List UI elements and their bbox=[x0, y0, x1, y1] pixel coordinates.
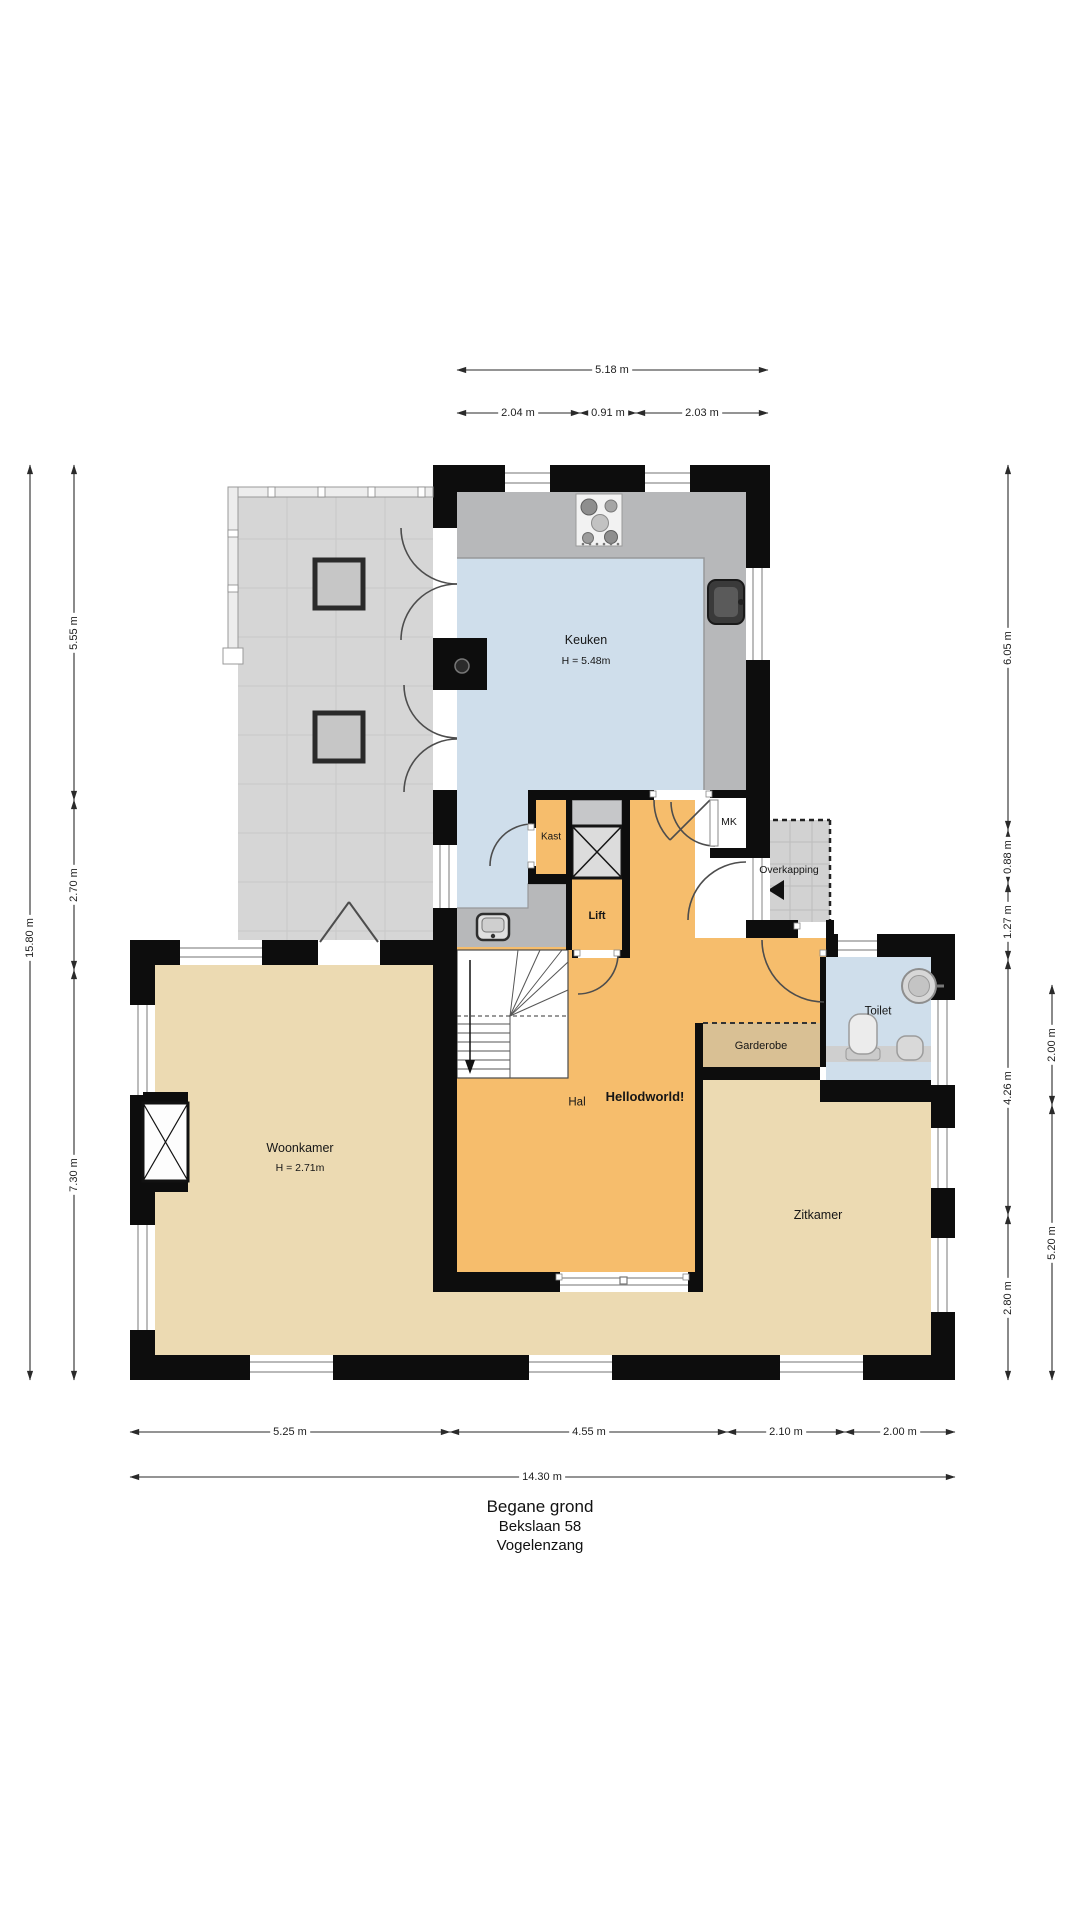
dim-bottom-total: 14.30 m bbox=[519, 1471, 565, 1483]
room-label-lift: Lift bbox=[588, 910, 605, 922]
page-title: Begane grond bbox=[487, 1497, 594, 1517]
dim-right-seg2: 0.88 m bbox=[1002, 837, 1014, 877]
room-label-kast: Kast bbox=[541, 832, 561, 843]
dim-top-seg1: 2.04 m bbox=[498, 407, 538, 419]
window bbox=[529, 1355, 612, 1380]
dim-bottom-seg2: 4.55 m bbox=[569, 1426, 609, 1438]
dim-left-seg1: 5.55 m bbox=[68, 613, 80, 653]
back-door-opening bbox=[798, 922, 826, 938]
lift-door-opening bbox=[578, 950, 618, 958]
window bbox=[780, 1355, 863, 1380]
terrace-column bbox=[315, 713, 363, 761]
chimney bbox=[143, 1092, 188, 1192]
dim-right-outer-seg1: 2.00 m bbox=[1046, 1025, 1058, 1065]
dim-right-seg5: 2.80 m bbox=[1002, 1278, 1014, 1318]
kast-door-opening bbox=[528, 828, 536, 866]
floorplan-page: Keuken H = 5.48m Kast Lift MK Overkappin… bbox=[0, 0, 1080, 1920]
dim-right-seg4: 4.26 m bbox=[1002, 1068, 1014, 1108]
room-height-woonkamer: H = 2.71m bbox=[276, 1163, 325, 1175]
kitchen-sink-icon bbox=[708, 580, 744, 624]
room-height-keuken: H = 5.48m bbox=[562, 656, 611, 668]
window bbox=[130, 1225, 155, 1330]
hal-note-text: Hellodworld! bbox=[606, 1090, 685, 1104]
dim-top-total: 5.18 m bbox=[592, 364, 632, 376]
dim-left-total: 15.80 m bbox=[24, 915, 36, 961]
mk-door-leaf bbox=[710, 800, 718, 846]
dim-top-seg2: 0.91 m bbox=[588, 407, 628, 419]
window bbox=[645, 465, 690, 492]
dim-top-seg3: 2.03 m bbox=[682, 407, 722, 419]
dim-bottom-seg3: 2.10 m bbox=[766, 1426, 806, 1438]
window bbox=[505, 465, 550, 492]
room-label-toilet: Toilet bbox=[865, 1006, 892, 1019]
dim-right-seg1: 6.05 m bbox=[1002, 628, 1014, 668]
dim-right-seg3: 1.27 m bbox=[1002, 902, 1014, 942]
dim-bottom-seg4: 2.00 m bbox=[880, 1426, 920, 1438]
dim-left-seg2: 2.70 m bbox=[68, 865, 80, 905]
room-label-garderobe: Garderobe bbox=[735, 1040, 788, 1052]
room-label-keuken: Keuken bbox=[565, 634, 607, 648]
staircase bbox=[457, 950, 568, 1078]
dim-left-seg3: 7.30 m bbox=[68, 1155, 80, 1195]
room-label-overkapping: Overkapping bbox=[759, 865, 819, 877]
window bbox=[180, 940, 262, 965]
window bbox=[433, 845, 457, 908]
toilet-bowl-icon bbox=[849, 1014, 877, 1054]
room-label-mk: MK bbox=[721, 817, 737, 829]
window bbox=[931, 1238, 955, 1312]
hal-kitchen-opening bbox=[654, 790, 710, 800]
window bbox=[931, 1000, 955, 1085]
scullery-sink-icon bbox=[477, 914, 509, 940]
window bbox=[931, 1128, 955, 1188]
fireplace-block bbox=[437, 638, 487, 690]
room-label-hal: Hal bbox=[568, 1097, 585, 1110]
floorplan-drawing bbox=[0, 0, 1080, 1920]
dim-right-outer-seg2: 5.20 m bbox=[1046, 1223, 1058, 1263]
window bbox=[250, 1355, 333, 1380]
room-label-zitkamer: Zitkamer bbox=[794, 1209, 843, 1223]
address-line: Bekslaan 58 bbox=[499, 1518, 582, 1535]
terrace-door-opening bbox=[318, 940, 380, 965]
terrace-column bbox=[315, 560, 363, 608]
room-label-woonkamer: Woonkamer bbox=[266, 1142, 333, 1156]
stove-icon bbox=[576, 494, 622, 546]
lift-shaft bbox=[572, 800, 622, 878]
window bbox=[746, 568, 770, 660]
city-line: Vogelenzang bbox=[497, 1537, 584, 1554]
window bbox=[130, 1005, 155, 1095]
dim-bottom-seg1: 5.25 m bbox=[270, 1426, 310, 1438]
window bbox=[838, 934, 877, 957]
hal-zitkamer-opening bbox=[560, 1272, 688, 1292]
hand-sink-icon bbox=[897, 1036, 923, 1060]
